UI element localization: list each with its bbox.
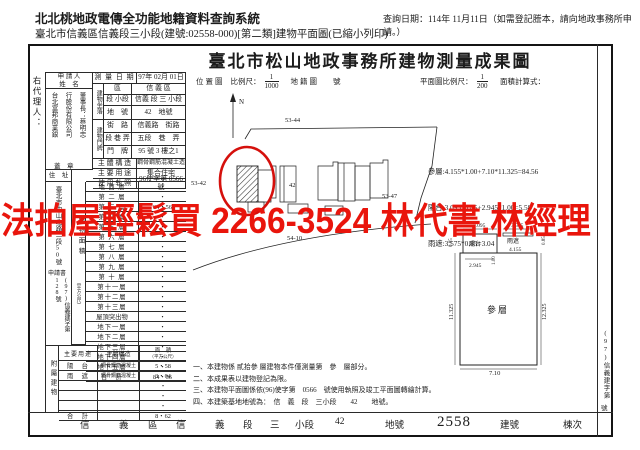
footer-divider [28,412,613,413]
situs-row-value: 42 地號 [132,106,186,120]
floor-row: 屋頂突出物・ [86,312,186,322]
survey-date-value: 97年 02月 01日 [137,72,186,84]
structure-label: 主 體 構 造 [93,159,137,169]
application-label: 申請書 [48,268,66,277]
door-row-value: 五段 巷 弄 [132,133,186,146]
document-page: 北北桃地政電傳全功能地籍資料查詢系統 查詢日期：114年 11月11日（如需登記… [0,0,640,450]
door-block-label: 建物門牌 [93,120,104,159]
parcel-label: 53-42 [191,180,206,187]
annex-table: 附屬建物 主要用途 主體構造 面 積 （平方公尺） 陽 台鋼骨鋼筋混凝土5・58… [45,345,186,412]
room-label: 參層 [487,304,509,315]
dim-left: 11.325 [449,304,455,320]
footer-section: 信 義 [176,417,235,431]
location-map: N 53-44 53-47 53-42 54-10 42 [185,86,445,276]
system-title: 北北桃地政電傳全功能地籍資料查詢系統 [35,8,260,27]
door-row-label: 街 路 [104,120,132,133]
annex-row: 雨 遮鋼骨鋼筋混凝土3・04 [59,371,186,381]
dimension-lines [455,229,541,369]
applicant-label: 申 請 人 姓 名 [45,72,93,89]
annex-row: ・ [59,401,186,411]
floor-row: 第 八 層・ [86,252,186,262]
applicant-name-col2: 行股份有限公司 [62,92,72,158]
svg-text:N: N [239,98,244,106]
plan-scale-fraction: 1 200 [477,73,489,90]
footer-building-no: 2558 [437,414,471,431]
left-agent-label: 右代理人： [31,76,43,129]
query-date: 查詢日期：114年 11月11日（如需登記謄本，請向地政事務所申請。） [383,12,640,38]
floor-row: 第十三層・ [86,302,186,312]
north-arrow: N [230,93,244,138]
floor-row: 地下一層・ [86,322,186,332]
red-watermark: 法拍屋輕鬆買 2266-3524 林代書.林經理 [1,192,591,244]
door-row-label: 門 牌 [104,146,132,159]
annex-row: ・ [59,391,186,401]
calc-label: 面積計算式： [500,76,545,87]
use-label: 主 要 用 途 [93,169,137,179]
parcel-boundary-top [245,127,437,139]
floor-row: 地下二層・ [86,332,186,342]
right-doc-no-suffix: 號 [601,402,608,412]
survey-date-label: 測 量 日 期 [93,72,137,84]
footer-building-suffix: 建號 [500,417,519,431]
floor-row: 地 面 層・ [86,182,186,192]
footer-district: 信 義 [80,417,139,431]
footer-unit-suffix: 棟次 [563,417,582,431]
right-doc-no: (97)信義建字第 [600,330,610,400]
dim-inner: 1.00 [492,256,497,265]
applicant-name-col1: 台北富邦商業銀 [48,92,58,158]
notes: 一、本建物係 貳拾參 層建物本件僅測量第 參 層部分。 二、本成果表以建物登記為… [193,362,593,408]
annex-header-row: 主要用途 主體構造 面 積 （平方公尺） [59,346,186,361]
door-row-value: 95 號 3 樓之1 [132,146,186,159]
dim-canopy-w: 4.155 [509,247,522,253]
footer-district-suffix: 區 [148,417,158,431]
footer-subsection-suffix: 小段 [295,417,314,431]
applicant-seal: 蓋 章 [54,160,74,170]
annex-row: 陽 台鋼骨鋼筋混凝土5・58 [59,361,186,371]
dim-right: 12.325 [542,304,548,321]
dim-balcony-w: 2.945 [469,263,482,269]
situs-row-label: 地 號 [104,106,132,120]
door-row-value: 信義路 街路 [132,120,186,133]
address-label: 住 址 [45,170,72,182]
footer-land-no: 42 [335,417,345,427]
right-column-divider [597,44,598,437]
subject-parcel-number: 42 [289,182,296,189]
application-no: (97)信義建字第128號 [53,278,71,344]
floor-row: 第 九 層・ [86,262,186,272]
annex-row: ・ [59,381,186,391]
parcel-label: 53-44 [285,117,301,124]
floor-row: 第 十 層・ [86,272,186,282]
floor-row: 第十一層・ [86,282,186,292]
door-row-label: 段 巷 弄 [104,133,132,146]
situs-row-value: 信義 段 三 小段 [132,95,186,106]
situs-block-label: 建物坐落 [93,84,104,120]
situs-row-value: 信 義 區 [132,84,186,95]
document-subtitle: 臺北市信義區信義段三小段(建號:02558-000)[第二類]建物平面圖(已縮小… [35,26,388,41]
situs-row-label: 段 小段 [104,95,132,106]
footer-section-suffix: 段 [243,417,253,431]
footer-subsection: 三 [270,417,280,431]
annex-rows: 主要用途 主體構造 面 積 （平方公尺） 陽 台鋼骨鋼筋混凝土5・58 雨 遮鋼… [59,346,186,412]
applicant-name-col3: 董事長：蔡明忠 [76,92,86,158]
page-title: 臺北市松山地政事務所建物測量成果圖 [205,47,535,72]
structure-value: 鋼骨鋼筋混凝土造 [137,159,186,169]
annex-label-cell: 附屬建物 [46,346,59,412]
footer-land-suffix: 地號 [385,417,404,431]
situs-row-label: 區 [104,84,132,95]
floor-row: 第十二層・ [86,292,186,302]
